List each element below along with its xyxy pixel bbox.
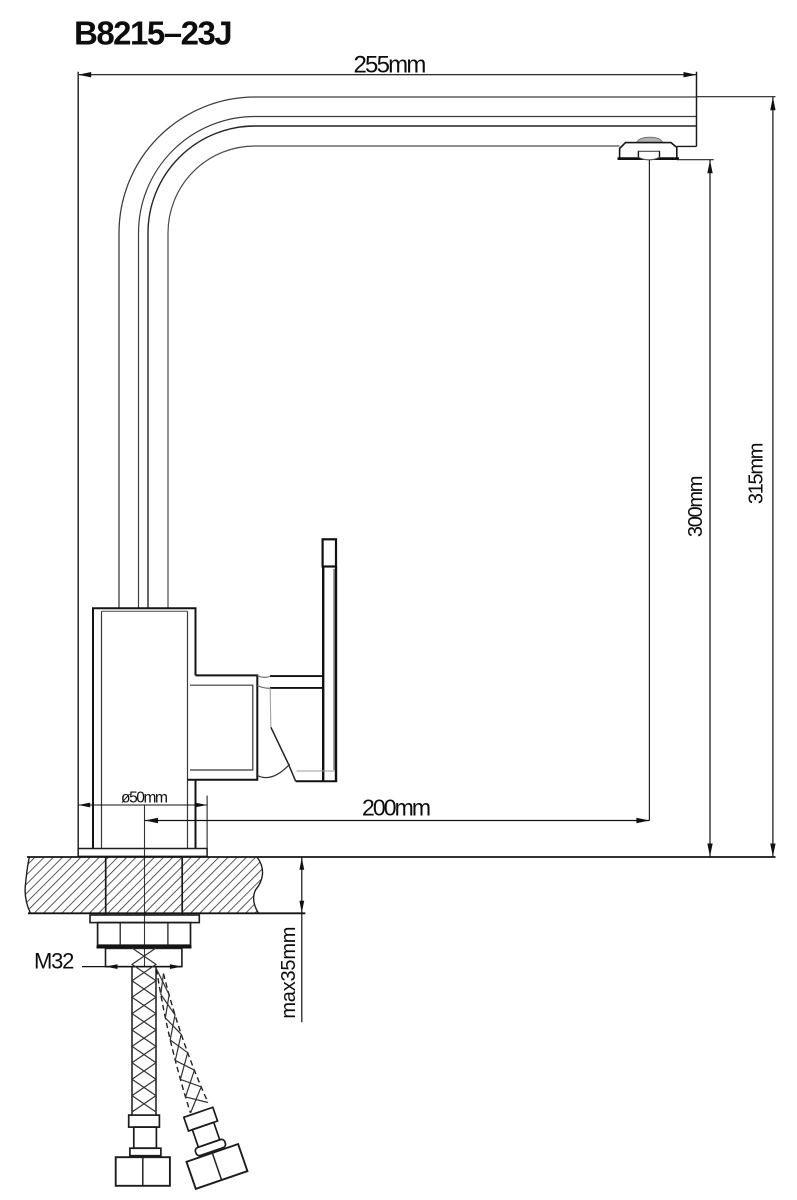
- svg-text:M32: M32: [34, 948, 74, 973]
- svg-text:300mm: 300mm: [685, 476, 707, 537]
- svg-text:315mm: 315mm: [746, 443, 768, 504]
- svg-text:ø50mm: ø50mm: [121, 790, 167, 807]
- svg-text:255mm: 255mm: [353, 52, 425, 79]
- svg-text:B8215–23J: B8215–23J: [74, 15, 231, 52]
- svg-text:200mm: 200mm: [362, 795, 430, 821]
- svg-text:max35mm: max35mm: [278, 927, 300, 1019]
